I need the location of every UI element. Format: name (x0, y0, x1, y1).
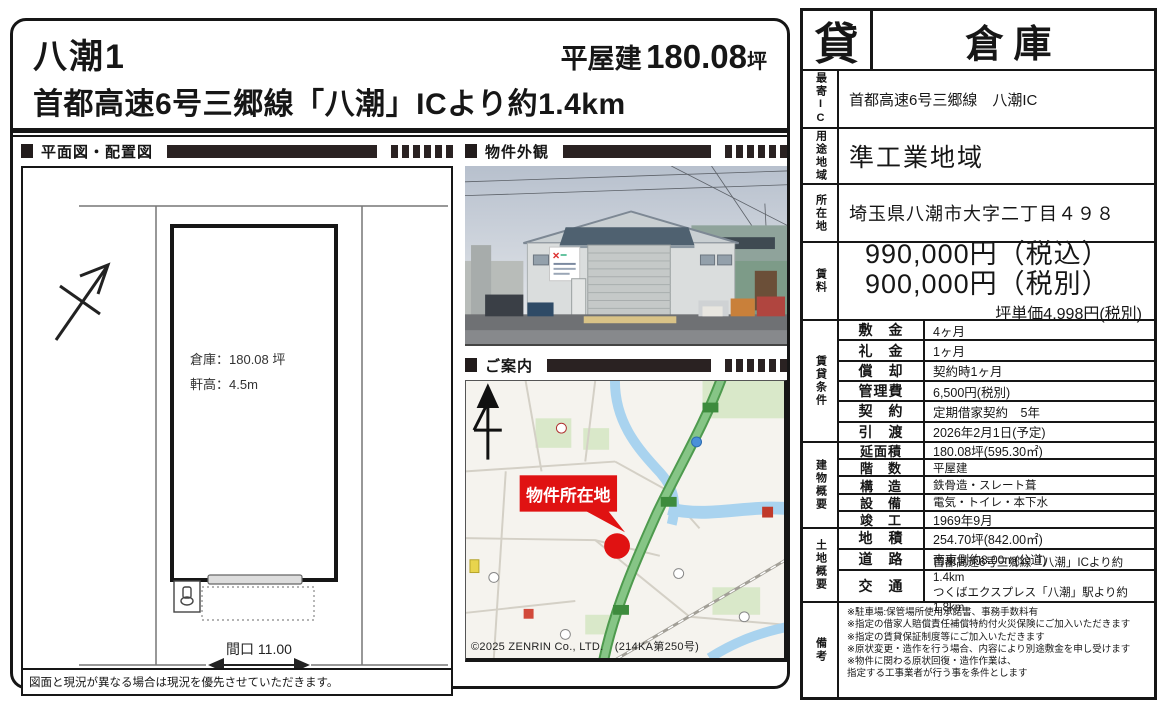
toilet-icon (174, 581, 200, 612)
address-value: 埼玉県八潮市大字二丁目４９８ (839, 185, 1154, 241)
note-line: ※指定の賃貸保証制度等にご加入いただきます (847, 632, 1146, 644)
title-block: 八潮1 平屋建 180.08坪 首都高速6号三郷線「八潮」ICより約1.4km (13, 21, 787, 123)
row-label: 土地概要 (815, 539, 826, 591)
row-label: 備考 (815, 637, 826, 663)
section-square-icon (465, 144, 477, 158)
building-outline (172, 226, 336, 580)
wall-sign (550, 247, 580, 281)
photo-section-title: 物件外観 (485, 141, 549, 162)
plan-eaves-label: 軒高：4.5m (190, 377, 258, 392)
floor-plan-section: 平面図・配置図 (21, 141, 453, 696)
size-unit: 坪 (747, 51, 767, 73)
location-map: 物件所在地 ©2025 ZENRIN Co., LTD. (214KA第250号… (465, 380, 787, 662)
size-value: 180.08 (646, 38, 747, 75)
map-marker-label: 物件所在地 (526, 485, 611, 505)
section-ticks (391, 145, 453, 158)
frontage-dimension: 間口 11.00 (208, 641, 310, 670)
note-line: ※物件に関わる原状回復・造作作業は、 (847, 656, 1146, 668)
building-size: 平屋建 180.08坪 (561, 37, 767, 76)
row-nearest-ic: 最寄IC 首都高速6号三郷線 八潮IC (803, 69, 1154, 127)
row-label: 賃貸条件 (815, 355, 826, 407)
exterior-photo-drawing (465, 166, 787, 344)
title-divider (13, 128, 787, 137)
property-flyer: 八潮1 平屋建 180.08坪 首都高速6号三郷線「八潮」ICより約1.4km … (0, 0, 1161, 704)
building-floor-area: 延面積 180.08坪(595.30㎡) (839, 443, 1154, 458)
canopy (560, 227, 695, 245)
land-area: 地 積 254.70坪(842.00㎡) (839, 529, 1154, 548)
section-bar (563, 145, 711, 158)
plan-footnote: 図面と現況が異なる場合は現況を優先させていただきます。 (23, 668, 451, 694)
entrance-door (572, 279, 586, 317)
lease-deposit: 敷 金 4ヶ月 (839, 321, 1154, 339)
row-address: 所在地 埼玉県八潮市大字二丁目４９８ (803, 183, 1154, 241)
size-label: 平屋建 (561, 44, 642, 74)
nearest-ic-value: 首都高速6号三郷線 八潮IC (839, 71, 1154, 127)
apron-dotted (202, 587, 314, 620)
note-line: ※原状変更・造作を行う場合、内容により別途敷金を申し受けます (847, 644, 1146, 656)
lease-management-fee: 管理費 6,500円(税別) (839, 380, 1154, 400)
plan-section-header: 平面図・配置図 (21, 141, 453, 161)
left-panel: 八潮1 平屋建 180.08坪 首都高速6号三郷線「八潮」ICより約1.4km … (10, 18, 790, 689)
row-building-outline: 建物概要 延面積 180.08坪(595.30㎡) 階 数 平屋建 構 造 鉄骨… (803, 441, 1154, 527)
photo-section-header: 物件外観 (465, 141, 787, 161)
row-notes: 備考 ※駐車場:保管場所使用承諾書、事務手数料有 ※指定の借家人賠償責任補償特約… (803, 601, 1154, 697)
row-label: 賃料 (815, 268, 826, 294)
floor-plan-box: 倉庫：180.08 坪 軒高：4.5m (21, 166, 453, 696)
for-rent-badge: 貸 (803, 11, 873, 69)
note-line: ※駐車場:保管場所使用承諾書、事務手数料有 (847, 607, 1146, 619)
access-headline: 首都高速6号三郷線「八潮」ICより約1.4km (33, 79, 767, 123)
building-completion: 竣 工 1969年9月 (839, 510, 1154, 527)
roller-door (588, 245, 671, 316)
row-land-outline: 土地概要 地 積 254.70坪(842.00㎡) 道 路 南東側約8.00m(… (803, 527, 1154, 601)
row-lease-terms: 賃貸条件 敷 金 4ヶ月 礼 金 1ヶ月 償 却 契約時1ヶ月 管理費 6,50… (803, 319, 1154, 441)
row-rent: 賃料 990,000円（税込） 900,000円（税別） 坪単価4,998円(税… (803, 241, 1154, 319)
exterior-photo (465, 166, 787, 346)
rent-value: 990,000円（税込） 900,000円（税別） 坪単価4,998円(税別) (839, 243, 1154, 319)
table-header-row: 貸 倉庫 (803, 11, 1154, 69)
window (718, 255, 732, 265)
section-bar (167, 145, 377, 158)
map-section-title: ご案内 (485, 355, 533, 376)
property-name: 八潮1 (33, 29, 126, 78)
spec-table: 貸 倉庫 最寄IC 首都高速6号三郷線 八潮IC 用途地域 準工業地域 所在地 … (800, 8, 1157, 700)
row-label: 最寄IC (815, 72, 826, 126)
zoning-value: 準工業地域 (839, 129, 1154, 183)
ground (465, 314, 787, 344)
floor-plan-drawing: 倉庫：180.08 坪 軒高：4.5m (23, 168, 451, 670)
shutter-door (208, 575, 302, 584)
section-square-icon (21, 144, 33, 158)
map-section-header: ご案内 (465, 355, 787, 375)
property-type: 倉庫 (873, 11, 1154, 69)
photo-section: 物件外観 (465, 141, 787, 346)
notes-text: ※駐車場:保管場所使用承諾書、事務手数料有 ※指定の借家人賠償責任補償特約付火災… (839, 603, 1154, 697)
window (700, 255, 714, 265)
north-arrow-icon (56, 265, 108, 340)
row-label: 建物概要 (815, 459, 826, 511)
section-ticks (725, 359, 787, 372)
frontage-label: 間口 11.00 (226, 641, 292, 657)
section-ticks (725, 145, 787, 158)
building-structure: 構 造 鉄骨造・スレート葺 (839, 475, 1154, 492)
note-line: ※指定の借家人賠償責任補償特約付火災保険にご加入いただきます (847, 619, 1146, 631)
rent-excl-tax: 900,000円（税別） (865, 269, 1146, 299)
lease-amortization: 償 却 契約時1ヶ月 (839, 360, 1154, 380)
section-square-icon (465, 358, 477, 372)
plan-area-label: 倉庫：180.08 坪 (190, 352, 285, 367)
access-line-1: 首都高速6号三郷線「八潮」ICより約1.4km (933, 556, 1146, 586)
building-stories: 階 数 平屋建 (839, 458, 1154, 475)
map-marker-dot (604, 533, 630, 559)
lease-contract: 契 約 定期借家契約 5年 (839, 400, 1154, 420)
rent-incl-tax: 990,000円（税込） (865, 239, 1146, 269)
row-label: 用途地域 (815, 130, 826, 182)
land-access: 交 通 首都高速6号三郷線「八潮」ICより約1.4km つくばエクスプレス「八潮… (839, 569, 1154, 601)
window (533, 255, 548, 265)
row-zoning: 用途地域 準工業地域 (803, 127, 1154, 183)
building-utilities: 設 備 電気・トイレ・本下水 (839, 493, 1154, 510)
note-line: 指定する工事業者が行う事を条件とします (847, 668, 1146, 680)
row-label: 所在地 (815, 194, 826, 233)
lease-handover: 引 渡 2026年2月1日(予定) (839, 421, 1154, 441)
plan-section-title: 平面図・配置図 (41, 141, 153, 162)
map-drawing: 物件所在地 (466, 381, 784, 658)
map-section: ご案内 (465, 355, 787, 662)
section-bar (547, 359, 711, 372)
map-copyright: ©2025 ZENRIN Co., LTD. (214KA第250号) (471, 638, 699, 654)
lease-key-money: 礼 金 1ヶ月 (839, 339, 1154, 359)
